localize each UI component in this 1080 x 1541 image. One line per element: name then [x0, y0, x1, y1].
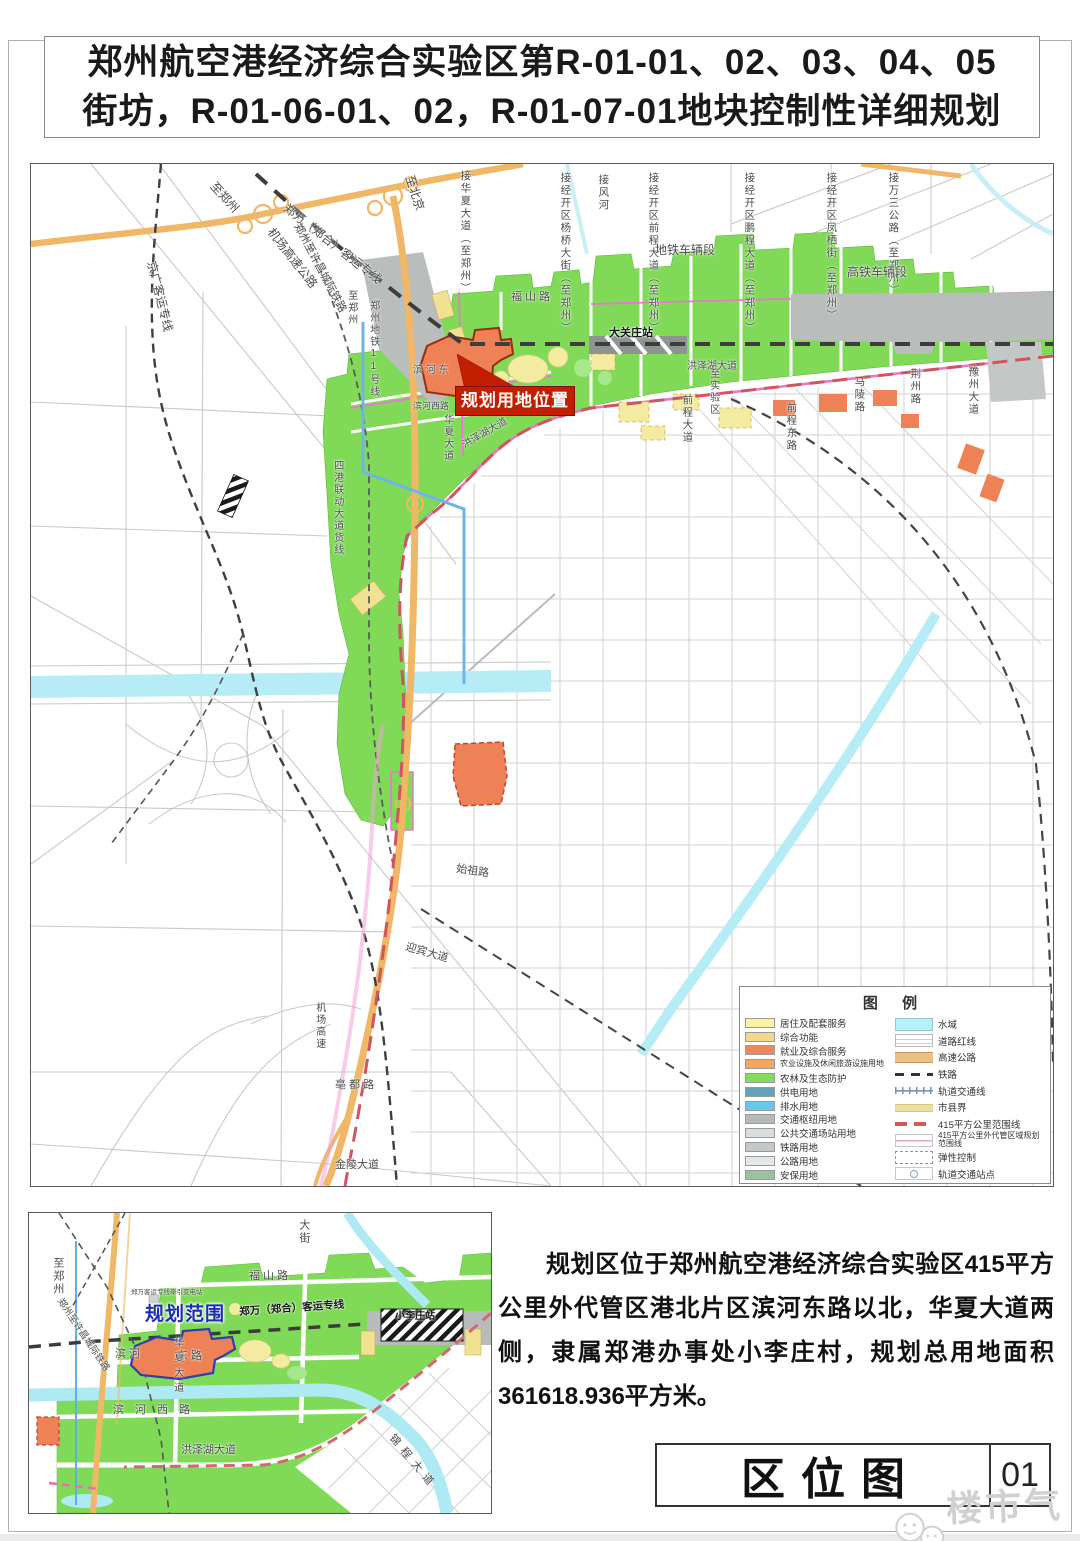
legend-label: 就业及综合服务 — [780, 1044, 847, 1058]
map-legend: 图 例 居住及配套服务综合功能就业及综合服务农业设施及休闲旅游设施用地农林及生态… — [739, 986, 1051, 1184]
legend-label: 公共交通场站用地 — [780, 1126, 856, 1140]
legend-item-农业设施及休闲旅游设施用地: 农业设施及休闲旅游设施用地 — [745, 1057, 895, 1071]
legend-label: 安保用地 — [780, 1168, 818, 1182]
planning-location-label: 规划用地位置 — [455, 386, 575, 416]
plan-description: 规划区位于郑州航空港经济综合实验区415平方公里外代管区港北片区滨河东路以北，华… — [498, 1243, 1054, 1419]
legend-item-综合功能: 综合功能 — [745, 1030, 895, 1044]
legend-symbol-redline — [895, 1034, 933, 1047]
legend-symbol-rail — [895, 1068, 933, 1081]
legend-label: 居住及配套服务 — [780, 1016, 847, 1030]
legend-label: 供电用地 — [780, 1085, 818, 1099]
legend-item-高速公路: 高速公路 — [895, 1049, 1045, 1066]
document-title: 郑州航空港经济综合实验区第R-01-01、02、03、04、05 街坊，R-01… — [44, 36, 1040, 138]
watermark-logo-icon — [893, 1501, 947, 1541]
legend-swatch-0 — [745, 1018, 775, 1028]
legend-label: 交通枢纽用地 — [780, 1112, 837, 1126]
legend-symbol-415outer — [895, 1134, 933, 1147]
legend-symbol-elastic — [895, 1151, 933, 1164]
legend-label: 高速公路 — [938, 1050, 976, 1064]
legend-symbol-water — [895, 1018, 933, 1031]
legend-symbol-415 — [895, 1117, 933, 1130]
legend-item-安保用地: 安保用地 — [745, 1168, 895, 1182]
legend-label: 农林及生态防护 — [780, 1071, 847, 1085]
legend-label: 弹性控制 — [938, 1150, 976, 1164]
legend-swatch-10 — [745, 1156, 775, 1166]
legend-label: 综合功能 — [780, 1030, 818, 1044]
inset-detail-map: 大街福 山 路至郑州郑州至许昌城际铁路郑万客运专线牵引变电站规划范围郑万（郑合）… — [28, 1212, 492, 1514]
legend-item-居住及配套服务: 居住及配套服务 — [745, 1016, 895, 1030]
legend-swatch-6 — [745, 1101, 775, 1111]
legend-swatch-9 — [745, 1142, 775, 1152]
legend-symbol-hwy — [895, 1051, 933, 1064]
legend-swatch-2 — [745, 1045, 775, 1055]
legend-label: 轨道交通站点 — [938, 1167, 995, 1181]
legend-label: 排水用地 — [780, 1099, 818, 1113]
legend-label: 农业设施及休闲旅游设施用地 — [780, 1060, 892, 1068]
legend-swatch-8 — [745, 1128, 775, 1138]
legend-item-公路用地: 公路用地 — [745, 1154, 895, 1168]
legend-item-轨道交通站点: 轨道交通站点 — [895, 1165, 1045, 1182]
legend-item-市县界: 市县界 — [895, 1099, 1045, 1116]
legend-label: 铁路用地 — [780, 1140, 818, 1154]
legend-item-415平方公里范围线: 415平方公里范围线 — [895, 1116, 1045, 1133]
plan-sheet: 郑州航空港经济综合实验区第R-01-01、02、03、04、05 街坊，R-01… — [0, 0, 1080, 1541]
legend-item-农林及生态防护: 农林及生态防护 — [745, 1071, 895, 1085]
legend-label: 铁路 — [938, 1067, 957, 1081]
legend-item-供电用地: 供电用地 — [745, 1085, 895, 1099]
south-parcel — [453, 742, 507, 806]
rail-station-hatch — [218, 474, 249, 517]
legend-item-铁路用地: 铁路用地 — [745, 1140, 895, 1154]
legend-label: 轨道交通线 — [938, 1084, 986, 1098]
legend-item-排水用地: 排水用地 — [745, 1099, 895, 1113]
legend-item-就业及综合服务: 就业及综合服务 — [745, 1044, 895, 1058]
legend-symbol-county — [895, 1101, 933, 1114]
legend-item-道路红线: 道路红线 — [895, 1033, 1045, 1050]
legend-swatch-5 — [745, 1087, 775, 1097]
legend-symbol-metro — [895, 1084, 933, 1097]
legend-item-轨道交通线: 轨道交通线 — [895, 1082, 1045, 1099]
title-line-1: 郑州航空港经济综合实验区第R-01-01、02、03、04、05 — [87, 38, 996, 87]
legend-title: 图 例 — [740, 992, 1050, 1013]
legend-item-公共交通场站用地: 公共交通场站用地 — [745, 1126, 895, 1140]
legend-label: 市县界 — [938, 1100, 967, 1114]
legend-swatch-3 — [745, 1059, 775, 1069]
watermark: 楼市气象 — [893, 1478, 1080, 1541]
legend-item-水域: 水域 — [895, 1016, 1045, 1033]
watermark-text: 楼市气象 — [946, 1476, 1080, 1541]
legend-swatch-7 — [745, 1114, 775, 1124]
legend-right-column: 水域道路红线高速公路铁路轨道交通线市县界415平方公里范围线415平方公里外代管… — [895, 1016, 1045, 1182]
main-location-map: 图 例 居住及配套服务综合功能就业及综合服务农业设施及休闲旅游设施用地农林及生态… — [30, 163, 1054, 1187]
legend-label: 公路用地 — [780, 1154, 818, 1168]
river-main — [31, 670, 551, 698]
inset-south-parcel — [37, 1417, 59, 1445]
legend-label: 415平方公里范围线 — [938, 1117, 1020, 1131]
inset-map-drawing — [29, 1213, 491, 1513]
inset-station-hatch — [381, 1309, 463, 1341]
legend-left-column: 居住及配套服务综合功能就业及综合服务农业设施及休闲旅游设施用地农林及生态防护供电… — [745, 1016, 895, 1182]
title-line-2: 街坊，R-01-06-01、02，R-01-07-01地块控制性详细规划 — [83, 87, 1002, 136]
legend-item-交通枢纽用地: 交通枢纽用地 — [745, 1113, 895, 1127]
legend-item-铁路: 铁路 — [895, 1066, 1045, 1083]
legend-item-415平方公里外代管区域规划范围线: 415平方公里外代管区域规划范围线 — [895, 1132, 1045, 1149]
legend-swatch-1 — [745, 1032, 775, 1042]
legend-swatch-11 — [745, 1170, 775, 1180]
legend-label: 415平方公里外代管区域规划范围线 — [938, 1132, 1045, 1149]
legend-swatch-4 — [745, 1073, 775, 1083]
legend-symbol-station — [895, 1167, 933, 1180]
legend-item-弹性控制: 弹性控制 — [895, 1149, 1045, 1166]
legend-label: 道路红线 — [938, 1034, 976, 1048]
legend-label: 水域 — [938, 1017, 957, 1031]
